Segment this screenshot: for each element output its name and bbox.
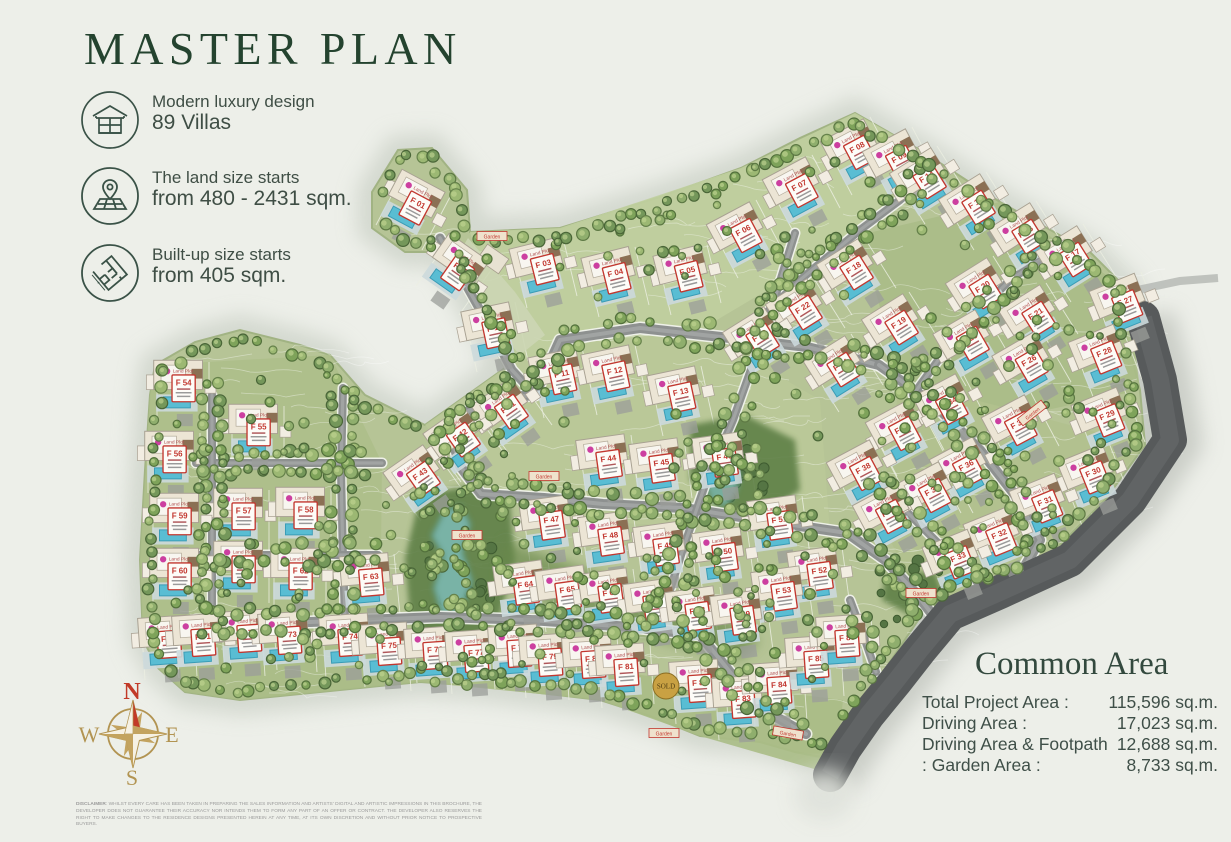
svg-text:N: N (123, 679, 141, 705)
svg-text:E: E (165, 722, 178, 747)
svg-text:F 56: F 56 (167, 449, 183, 458)
svg-text:F 57: F 57 (236, 506, 252, 515)
svg-text:Land Plot: Land Plot (169, 501, 190, 507)
svg-text:Garden: Garden (459, 534, 476, 540)
svg-text:Land Plot: Land Plot (173, 368, 194, 374)
svg-text:Land Plot: Land Plot (164, 439, 185, 445)
svg-text:F 84: F 84 (771, 680, 788, 690)
svg-text:SOLD: SOLD (657, 683, 675, 691)
svg-text:Land Plot: Land Plot (233, 496, 254, 502)
svg-text:F 63: F 63 (363, 572, 380, 582)
svg-text:Land Plot: Land Plot (295, 495, 316, 501)
svg-text:F 54: F 54 (176, 378, 192, 387)
svg-text:Garden: Garden (484, 235, 501, 241)
svg-text:Garden: Garden (913, 592, 930, 598)
svg-text:F 60: F 60 (172, 566, 188, 575)
svg-text:F 81: F 81 (618, 662, 635, 672)
svg-text:F 59: F 59 (172, 511, 188, 520)
svg-text:S: S (126, 765, 138, 790)
svg-text:Garden: Garden (536, 475, 553, 481)
svg-text:Garden: Garden (656, 732, 673, 738)
svg-text:Land Plot: Land Plot (233, 549, 254, 555)
svg-text:Land Plot: Land Plot (169, 556, 190, 562)
svg-text:F 58: F 58 (298, 505, 314, 514)
svg-text:W: W (79, 722, 100, 747)
